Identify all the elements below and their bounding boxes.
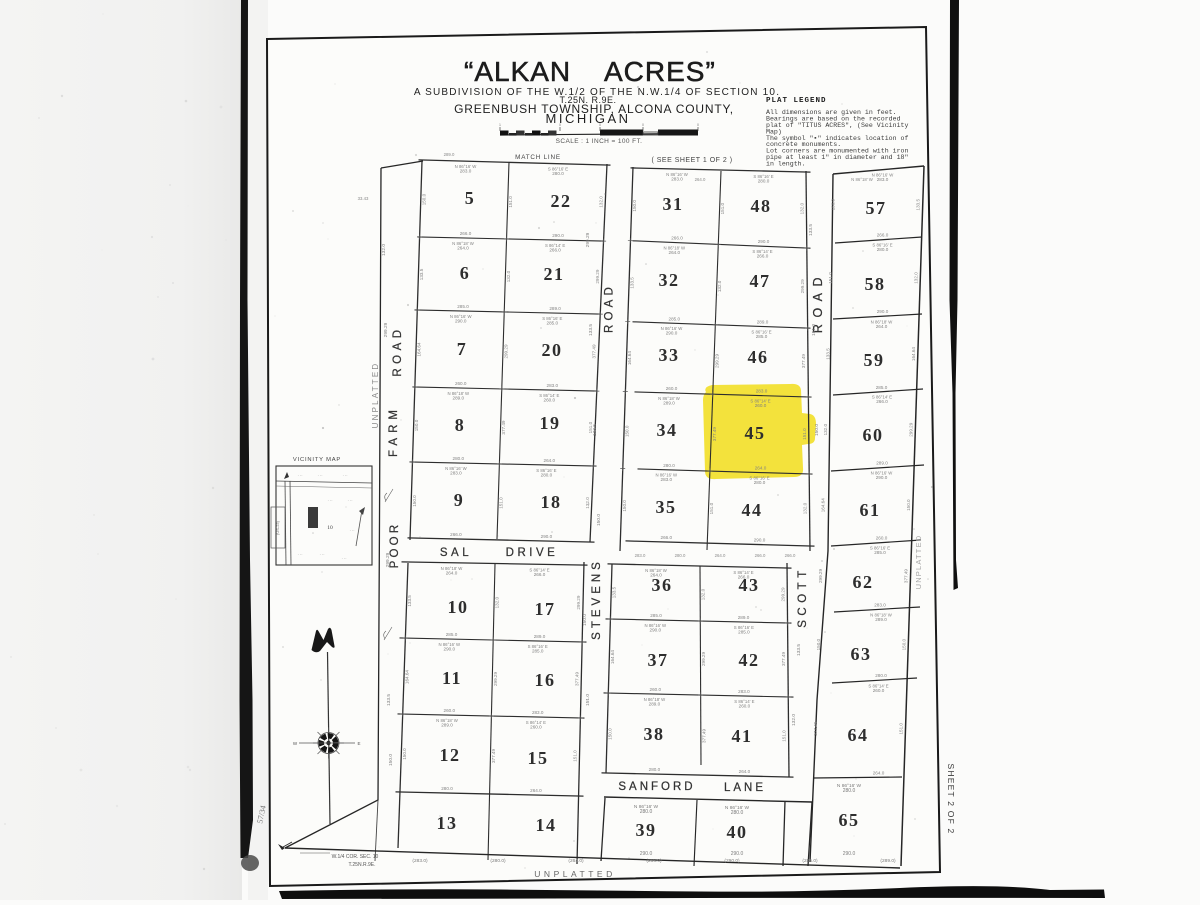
svg-text:10: 10 bbox=[448, 597, 469, 617]
svg-text:299.29: 299.29 bbox=[800, 279, 805, 293]
svg-text:377.49: 377.49 bbox=[701, 729, 706, 743]
svg-text:266.0: 266.0 bbox=[757, 254, 769, 259]
svg-text:285.0: 285.0 bbox=[532, 649, 544, 654]
svg-text:22: 22 bbox=[551, 191, 572, 211]
svg-text:377.49: 377.49 bbox=[592, 344, 597, 358]
svg-text:266.0: 266.0 bbox=[534, 572, 546, 577]
svg-text:290.0: 290.0 bbox=[650, 628, 662, 633]
svg-text:ROAD: ROAD bbox=[604, 283, 616, 333]
svg-text:290.0: 290.0 bbox=[877, 309, 889, 314]
svg-text:133.5: 133.5 bbox=[796, 644, 802, 656]
svg-text:UNPLATTED: UNPLATTED bbox=[371, 362, 380, 429]
svg-text:60: 60 bbox=[863, 425, 884, 445]
svg-text:260.0: 260.0 bbox=[876, 536, 888, 541]
svg-text:UNPLATTED: UNPLATTED bbox=[914, 535, 923, 590]
svg-text:264.0: 264.0 bbox=[530, 788, 542, 793]
svg-text:· ··: · ·· bbox=[342, 473, 347, 478]
svg-text:12: 12 bbox=[440, 745, 461, 765]
svg-text:260.0: 260.0 bbox=[530, 725, 542, 730]
svg-text:38: 38 bbox=[644, 724, 665, 744]
svg-text:299.29: 299.29 bbox=[780, 587, 785, 601]
svg-text:283.0: 283.0 bbox=[460, 169, 472, 174]
svg-text:151.0: 151.0 bbox=[499, 497, 504, 509]
svg-text:299.29: 299.29 bbox=[908, 422, 913, 436]
svg-text:41: 41 bbox=[732, 726, 753, 746]
svg-text:150.0: 150.0 bbox=[901, 638, 906, 650]
svg-text:150.0: 150.0 bbox=[421, 193, 426, 205]
svg-text:ROAD: ROAD bbox=[811, 271, 825, 333]
svg-text:266.0: 266.0 bbox=[877, 233, 889, 238]
svg-text:47: 47 bbox=[750, 271, 771, 291]
svg-text:150.0: 150.0 bbox=[830, 198, 835, 210]
svg-text:19: 19 bbox=[540, 413, 561, 433]
svg-text:16: 16 bbox=[535, 670, 556, 690]
svg-text:299.29: 299.29 bbox=[383, 322, 389, 337]
svg-text:151.0: 151.0 bbox=[572, 750, 577, 762]
svg-text:164.64: 164.64 bbox=[820, 498, 825, 512]
svg-text:290.0: 290.0 bbox=[666, 331, 678, 336]
svg-text:ROAD: ROAD bbox=[392, 325, 404, 376]
svg-text:266.0: 266.0 bbox=[876, 399, 888, 404]
svg-text:7: 7 bbox=[457, 339, 468, 359]
svg-text:· ··: · ·· bbox=[297, 473, 302, 478]
svg-text:20: 20 bbox=[542, 340, 563, 360]
svg-text:290.0: 290.0 bbox=[843, 851, 856, 857]
svg-text:280.0: 280.0 bbox=[875, 673, 887, 678]
svg-text:280.0: 280.0 bbox=[640, 809, 653, 815]
svg-text:150.0: 150.0 bbox=[625, 425, 630, 437]
svg-text:17: 17 bbox=[535, 599, 556, 619]
svg-text:(283.0): (283.0) bbox=[412, 858, 428, 864]
svg-text:290.0: 290.0 bbox=[758, 239, 770, 244]
svg-text:280.0: 280.0 bbox=[453, 456, 465, 461]
svg-text:VICINITY MAP: VICINITY MAP bbox=[293, 457, 341, 463]
svg-text:SHEET 2 OF 2: SHEET 2 OF 2 bbox=[946, 764, 956, 835]
svg-text:0: 0 bbox=[642, 123, 644, 127]
svg-text:266.0: 266.0 bbox=[450, 532, 462, 537]
svg-text:151.0: 151.0 bbox=[828, 272, 833, 284]
svg-text:164.64: 164.64 bbox=[404, 670, 409, 684]
svg-text:132.0: 132.0 bbox=[799, 202, 804, 214]
svg-text:34: 34 bbox=[657, 420, 678, 440]
svg-text:280.0: 280.0 bbox=[649, 767, 661, 772]
svg-text:299.29: 299.29 bbox=[595, 269, 600, 283]
svg-text:150.0: 150.0 bbox=[388, 754, 394, 766]
svg-text:150.0: 150.0 bbox=[596, 514, 602, 526]
svg-text:264.0: 264.0 bbox=[544, 458, 556, 463]
svg-text:260.0: 260.0 bbox=[455, 381, 467, 386]
svg-text:58: 58 bbox=[865, 274, 886, 294]
svg-text:266.0: 266.0 bbox=[671, 236, 683, 241]
svg-text:260.0: 260.0 bbox=[544, 398, 556, 403]
svg-text:59: 59 bbox=[864, 350, 885, 370]
svg-text:266.0: 266.0 bbox=[785, 553, 796, 558]
svg-text:264.0: 264.0 bbox=[446, 570, 458, 575]
svg-text:LANE: LANE bbox=[724, 782, 766, 794]
svg-text:280.0: 280.0 bbox=[843, 788, 856, 794]
svg-text:280.0: 280.0 bbox=[754, 480, 766, 485]
svg-text:377.49: 377.49 bbox=[813, 721, 818, 735]
svg-text:264.0: 264.0 bbox=[695, 177, 706, 182]
svg-text:132.0: 132.0 bbox=[495, 596, 500, 608]
svg-text:266.0: 266.0 bbox=[755, 553, 766, 558]
svg-text:283.0: 283.0 bbox=[877, 177, 889, 182]
svg-text:151.0: 151.0 bbox=[508, 196, 513, 208]
svg-text:285.0: 285.0 bbox=[738, 630, 750, 635]
svg-text:151.0: 151.0 bbox=[811, 324, 817, 336]
svg-text:(266.0): (266.0) bbox=[646, 858, 662, 864]
svg-text:N 86°18' W: N 86°18' W bbox=[851, 177, 874, 182]
svg-text:289.0: 289.0 bbox=[738, 615, 750, 620]
svg-text:· ··: · ·· bbox=[317, 473, 322, 478]
svg-text:39: 39 bbox=[636, 820, 657, 840]
svg-text:289.0: 289.0 bbox=[441, 723, 453, 728]
svg-text:132.0: 132.0 bbox=[598, 196, 603, 208]
svg-text:283.0: 283.0 bbox=[547, 383, 559, 388]
svg-text:266.0: 266.0 bbox=[460, 231, 472, 236]
svg-text:132.0: 132.0 bbox=[506, 270, 511, 282]
svg-text:151.0: 151.0 bbox=[709, 502, 714, 514]
svg-text:133.5: 133.5 bbox=[588, 324, 594, 336]
svg-text:T.25N.R.9E.: T.25N.R.9E. bbox=[349, 862, 376, 868]
svg-text:377.49: 377.49 bbox=[574, 672, 579, 686]
svg-text:150.0: 150.0 bbox=[414, 419, 419, 431]
svg-text:1: 1 bbox=[499, 123, 501, 127]
svg-text:285.0: 285.0 bbox=[457, 304, 469, 309]
svg-text:285.0: 285.0 bbox=[669, 316, 681, 321]
svg-text:15: 15 bbox=[528, 748, 549, 768]
svg-text:290.0: 290.0 bbox=[754, 538, 766, 543]
svg-text:164.64: 164.64 bbox=[911, 347, 916, 361]
svg-text:14: 14 bbox=[536, 815, 557, 835]
svg-text:DRIVE: DRIVE bbox=[506, 547, 559, 559]
svg-text:150.0: 150.0 bbox=[814, 424, 820, 436]
svg-text:285.0: 285.0 bbox=[650, 613, 662, 618]
svg-text:8: 8 bbox=[455, 415, 466, 435]
svg-text:283.0: 283.0 bbox=[635, 553, 646, 558]
svg-text:150.0: 150.0 bbox=[608, 728, 613, 740]
svg-text:285.0: 285.0 bbox=[446, 632, 458, 637]
svg-text:0: 0 bbox=[559, 123, 561, 127]
svg-text:264.0: 264.0 bbox=[755, 466, 767, 471]
svg-text:42: 42 bbox=[739, 650, 760, 670]
svg-text:285.0: 285.0 bbox=[756, 334, 768, 339]
svg-text:33.43: 33.43 bbox=[358, 196, 369, 201]
svg-text:31: 31 bbox=[663, 194, 684, 214]
svg-text:290.0: 290.0 bbox=[876, 475, 888, 480]
svg-text:260.0: 260.0 bbox=[755, 403, 767, 408]
svg-text:133.5: 133.5 bbox=[407, 595, 412, 607]
svg-text:132.0: 132.0 bbox=[717, 280, 722, 292]
svg-text:· ··: · ·· bbox=[297, 552, 302, 557]
svg-text:283.0: 283.0 bbox=[661, 477, 673, 482]
svg-text:6: 6 bbox=[460, 263, 471, 283]
svg-text:64: 64 bbox=[848, 725, 869, 745]
svg-text:ACRES”: ACRES” bbox=[604, 56, 716, 87]
svg-text:133.5: 133.5 bbox=[808, 224, 814, 236]
svg-text:290.0: 290.0 bbox=[640, 851, 653, 857]
svg-text:151.0: 151.0 bbox=[802, 428, 807, 440]
svg-text:377.49: 377.49 bbox=[903, 569, 908, 583]
svg-text:289.0: 289.0 bbox=[444, 152, 455, 157]
svg-text:289.0: 289.0 bbox=[757, 320, 769, 325]
svg-text:E: E bbox=[357, 741, 360, 746]
svg-text:45: 45 bbox=[745, 423, 766, 443]
svg-text:in length.: in length. bbox=[766, 161, 806, 168]
svg-text:SCOTT: SCOTT bbox=[797, 566, 809, 627]
svg-text:260.0: 260.0 bbox=[666, 386, 678, 391]
svg-text:150.0: 150.0 bbox=[622, 500, 627, 512]
svg-text:164.64: 164.64 bbox=[417, 342, 422, 356]
svg-text:280.0: 280.0 bbox=[541, 473, 553, 478]
svg-text:132.0: 132.0 bbox=[791, 714, 797, 726]
svg-text:65: 65 bbox=[839, 810, 860, 830]
svg-text:264.0: 264.0 bbox=[873, 770, 885, 775]
svg-text:164.64: 164.64 bbox=[627, 351, 632, 365]
svg-text:283.0: 283.0 bbox=[738, 689, 750, 694]
svg-text:61: 61 bbox=[860, 500, 881, 520]
svg-text:285.0: 285.0 bbox=[874, 550, 886, 555]
svg-text:299.29: 299.29 bbox=[714, 354, 719, 368]
svg-text:151.0: 151.0 bbox=[720, 202, 725, 214]
svg-text:132.0: 132.0 bbox=[381, 244, 387, 256]
svg-text:280.0: 280.0 bbox=[441, 786, 453, 791]
svg-text:264.0: 264.0 bbox=[457, 245, 469, 250]
svg-text:264.0: 264.0 bbox=[650, 573, 662, 578]
svg-text:289.0: 289.0 bbox=[875, 617, 887, 622]
svg-text:21: 21 bbox=[544, 264, 565, 284]
svg-text:290.0: 290.0 bbox=[444, 647, 456, 652]
svg-text:9: 9 bbox=[454, 490, 465, 510]
svg-text:290.0: 290.0 bbox=[552, 233, 564, 238]
svg-text:264.0: 264.0 bbox=[876, 324, 888, 329]
svg-text:289.0: 289.0 bbox=[534, 634, 546, 639]
svg-text:W.1/4 COR. SEC. 10: W.1/4 COR. SEC. 10 bbox=[332, 854, 379, 860]
svg-text:plat of "TITUS ACRES", (See Vi: plat of "TITUS ACRES", (See Vicinity bbox=[766, 122, 908, 129]
svg-text:285.0: 285.0 bbox=[547, 321, 559, 326]
svg-text:132.0: 132.0 bbox=[701, 588, 706, 600]
svg-text:132.0: 132.0 bbox=[803, 502, 808, 514]
svg-text:133.5: 133.5 bbox=[916, 199, 921, 211]
svg-text:· ··: · ·· bbox=[327, 498, 332, 503]
svg-text:SAL: SAL bbox=[440, 547, 472, 559]
svg-text:133.5: 133.5 bbox=[630, 277, 635, 289]
svg-text:260.0: 260.0 bbox=[873, 688, 885, 693]
svg-text:133.5: 133.5 bbox=[419, 268, 424, 280]
svg-text:260.0: 260.0 bbox=[650, 687, 662, 692]
svg-text:(280.0): (280.0) bbox=[490, 858, 506, 864]
svg-text:377.49: 377.49 bbox=[501, 420, 506, 434]
svg-text:MATCH LINE: MATCH LINE bbox=[515, 154, 561, 161]
svg-text:151.0: 151.0 bbox=[782, 730, 787, 742]
svg-text:0: 0 bbox=[697, 123, 699, 127]
svg-text:299.29: 299.29 bbox=[701, 652, 706, 666]
svg-text:289.0: 289.0 bbox=[549, 306, 561, 311]
svg-text:290.0: 290.0 bbox=[731, 851, 744, 857]
svg-text:· ··: · ·· bbox=[349, 528, 354, 533]
svg-text:FARM: FARM bbox=[388, 405, 400, 457]
svg-text:150.0: 150.0 bbox=[816, 638, 821, 650]
svg-text:63: 63 bbox=[851, 644, 872, 664]
svg-text:299.29: 299.29 bbox=[576, 595, 581, 609]
svg-text:164.64: 164.64 bbox=[610, 650, 615, 664]
svg-text:133.5: 133.5 bbox=[386, 694, 392, 706]
svg-text:289.0: 289.0 bbox=[663, 400, 675, 405]
svg-text:299.29: 299.29 bbox=[493, 672, 498, 686]
svg-text:260.0: 260.0 bbox=[739, 704, 751, 709]
svg-text:280.0: 280.0 bbox=[877, 247, 889, 252]
svg-text:PLAT LEGEND: PLAT LEGEND bbox=[766, 97, 827, 105]
svg-text:STEVENS: STEVENS bbox=[591, 558, 603, 640]
svg-text:5: 5 bbox=[465, 188, 476, 208]
svg-text:40: 40 bbox=[727, 822, 748, 842]
svg-text:290.0: 290.0 bbox=[541, 534, 553, 539]
svg-text:· ··: · ·· bbox=[319, 552, 324, 557]
svg-text:283.0: 283.0 bbox=[756, 389, 768, 394]
svg-text:266.0: 266.0 bbox=[738, 575, 750, 580]
svg-text:151.0: 151.0 bbox=[899, 723, 904, 735]
svg-text:299.29: 299.29 bbox=[585, 232, 591, 247]
svg-text:(264.0): (264.0) bbox=[568, 858, 584, 864]
svg-text:377.49: 377.49 bbox=[491, 749, 496, 763]
svg-text:132.0: 132.0 bbox=[823, 423, 828, 435]
svg-text:280.0: 280.0 bbox=[675, 553, 686, 558]
svg-text:44: 44 bbox=[742, 500, 763, 520]
svg-text:132.0: 132.0 bbox=[913, 272, 918, 284]
svg-text:36: 36 bbox=[652, 575, 673, 595]
svg-text:280.0: 280.0 bbox=[731, 810, 744, 816]
svg-text:377.49: 377.49 bbox=[781, 652, 786, 666]
svg-text:150.0: 150.0 bbox=[632, 200, 637, 212]
svg-text:32: 32 bbox=[659, 270, 680, 290]
svg-text:33: 33 bbox=[659, 345, 680, 365]
svg-text:280.0: 280.0 bbox=[663, 463, 675, 468]
svg-text:133.5: 133.5 bbox=[592, 424, 598, 436]
svg-text:132.0: 132.0 bbox=[585, 497, 590, 509]
svg-text:(US-23): (US-23) bbox=[275, 520, 280, 535]
svg-text:150.0: 150.0 bbox=[906, 499, 911, 511]
svg-text:57: 57 bbox=[866, 198, 887, 218]
svg-text:377.49: 377.49 bbox=[801, 354, 806, 368]
svg-text:299.29: 299.29 bbox=[818, 569, 823, 583]
svg-text:280.0: 280.0 bbox=[758, 179, 770, 184]
svg-text:264.0: 264.0 bbox=[715, 553, 726, 558]
svg-text:11: 11 bbox=[442, 668, 462, 688]
svg-text:150.0: 150.0 bbox=[582, 614, 588, 626]
svg-text:299.29: 299.29 bbox=[504, 344, 509, 358]
svg-text:46: 46 bbox=[748, 347, 769, 367]
svg-text:18: 18 bbox=[541, 492, 562, 512]
svg-text:150.0: 150.0 bbox=[402, 748, 407, 760]
svg-text:283.0: 283.0 bbox=[532, 710, 544, 715]
svg-text:35: 35 bbox=[656, 497, 677, 517]
svg-text:377.49: 377.49 bbox=[712, 427, 717, 441]
svg-text:(289.0): (289.0) bbox=[880, 858, 896, 864]
svg-text:( SEE SHEET 1 OF 2 ): ( SEE SHEET 1 OF 2 ) bbox=[651, 157, 732, 164]
svg-text:283.0: 283.0 bbox=[671, 177, 683, 182]
svg-text:266.0: 266.0 bbox=[549, 248, 561, 253]
svg-text:SCALE : 1 INCH = 100 FT.: SCALE : 1 INCH = 100 FT. bbox=[556, 138, 643, 145]
svg-text:289.0: 289.0 bbox=[453, 395, 465, 400]
svg-text:(285.0): (285.0) bbox=[802, 858, 818, 864]
svg-text:289.0: 289.0 bbox=[876, 461, 888, 466]
svg-text:· ··: · ·· bbox=[347, 498, 352, 503]
svg-text:283.0: 283.0 bbox=[874, 602, 886, 607]
svg-text:48: 48 bbox=[751, 196, 772, 216]
svg-text:37: 37 bbox=[648, 650, 669, 670]
svg-text:151.0: 151.0 bbox=[585, 694, 591, 706]
svg-text:299.29: 299.29 bbox=[385, 552, 391, 567]
svg-text:· ··: · ·· bbox=[341, 556, 346, 561]
svg-text:133.5: 133.5 bbox=[825, 348, 830, 360]
svg-text:283.0: 283.0 bbox=[450, 470, 462, 475]
svg-text:289.0: 289.0 bbox=[649, 702, 661, 707]
svg-text:“ALKAN: “ALKAN bbox=[464, 56, 571, 87]
svg-text:280.0: 280.0 bbox=[552, 171, 564, 176]
svg-text:290.0: 290.0 bbox=[455, 318, 467, 323]
svg-text:266.0: 266.0 bbox=[661, 535, 673, 540]
svg-text:285.0: 285.0 bbox=[876, 385, 888, 390]
svg-text:10: 10 bbox=[327, 525, 333, 531]
svg-text:264.0: 264.0 bbox=[739, 769, 751, 774]
svg-text:62: 62 bbox=[853, 572, 874, 592]
svg-text:UNPLATTED: UNPLATTED bbox=[534, 869, 615, 879]
svg-text:264.0: 264.0 bbox=[669, 250, 681, 255]
svg-text:260.0: 260.0 bbox=[444, 708, 456, 713]
svg-text:133.5: 133.5 bbox=[612, 586, 617, 598]
svg-text:150.0: 150.0 bbox=[412, 495, 417, 507]
svg-text:0: 0 bbox=[599, 123, 601, 127]
svg-text:(290.0): (290.0) bbox=[724, 858, 740, 864]
svg-text:SANFORD: SANFORD bbox=[618, 781, 695, 793]
